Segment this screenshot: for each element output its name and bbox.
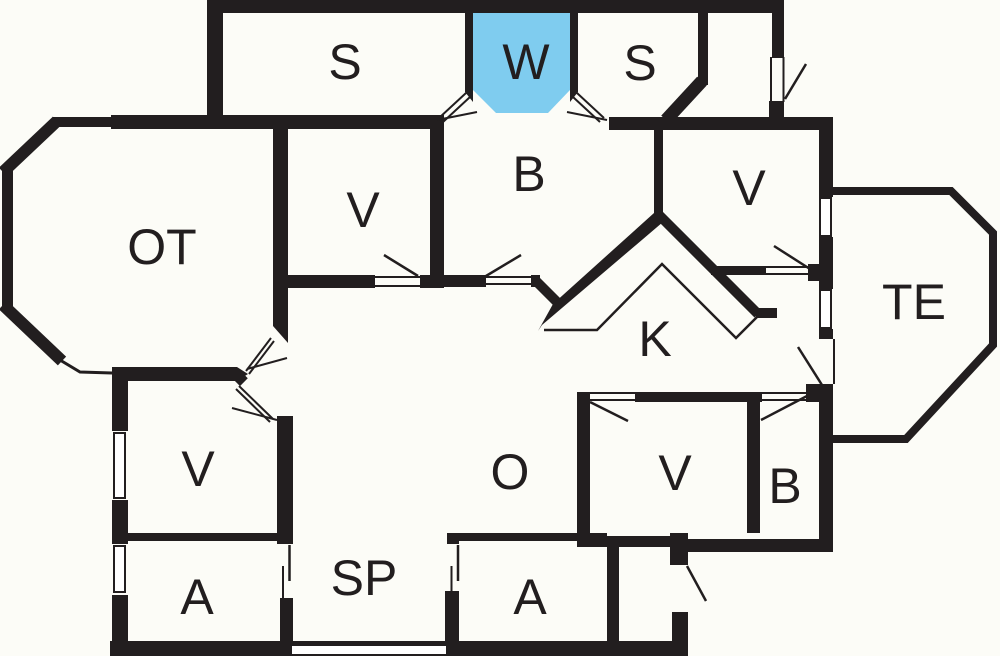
svg-text:S: S (623, 35, 656, 91)
svg-text:V: V (658, 445, 692, 501)
svg-text:V: V (346, 182, 380, 238)
svg-text:A: A (180, 569, 214, 625)
svg-text:B: B (512, 146, 545, 202)
svg-text:OT: OT (127, 219, 196, 275)
svg-text:SP: SP (331, 550, 398, 606)
svg-text:S: S (328, 34, 361, 90)
svg-text:A: A (513, 569, 547, 625)
svg-text:O: O (491, 444, 530, 500)
svg-text:V: V (181, 441, 215, 497)
svg-text:V: V (732, 160, 766, 216)
svg-text:W: W (502, 34, 550, 90)
svg-text:B: B (768, 458, 801, 514)
svg-text:K: K (638, 311, 671, 367)
svg-text:TE: TE (882, 274, 946, 330)
